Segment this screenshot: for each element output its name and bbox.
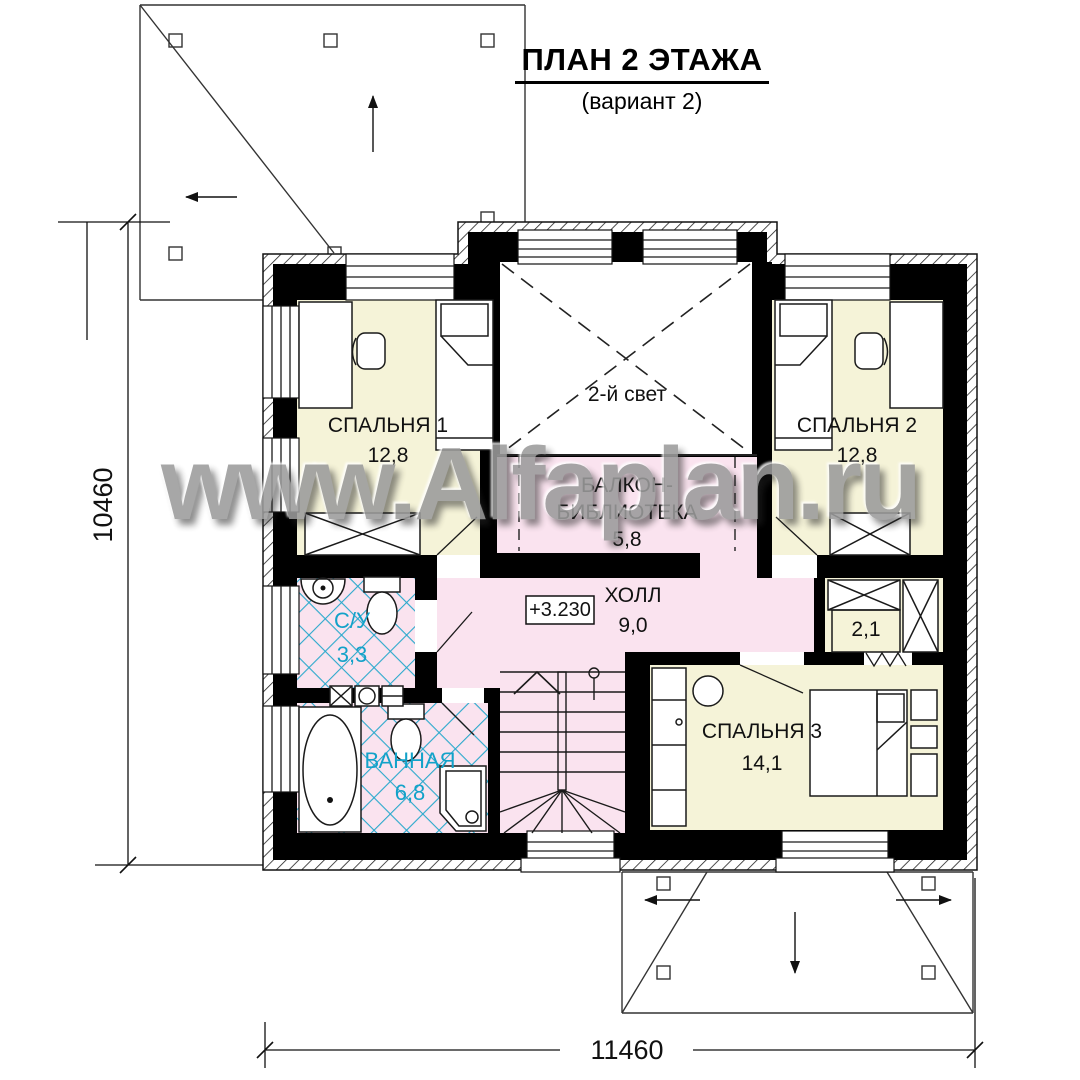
balcony-label-2: БИБЛИОТЕКА <box>557 501 698 524</box>
floor-plan-drawing: 10460 11460 <box>0 0 1080 1080</box>
roof-post <box>922 966 935 979</box>
double-bed <box>810 690 907 796</box>
bedroom3-area: 14,1 <box>742 752 783 775</box>
level-mark-value: +3.230 <box>529 599 591 621</box>
window-left-2 <box>263 438 299 512</box>
drawing-title-block: ПЛАН 2 ЭТАЖА (вариант 2) <box>492 42 792 115</box>
roof-post <box>169 247 182 260</box>
bedroom2-label: СПАЛЬНЯ 2 <box>797 414 917 437</box>
nightstand <box>911 726 937 748</box>
roof-post <box>922 877 935 890</box>
lower-roof-outline <box>622 872 973 1013</box>
window-left-1 <box>263 306 299 398</box>
wardrobe-tall <box>903 580 938 652</box>
wc-label: С/У <box>334 608 371 633</box>
wardrobe <box>828 580 900 610</box>
balcony-area: 5,8 <box>612 528 641 551</box>
round-table <box>693 676 723 706</box>
window-top-bedroom1 <box>346 254 454 300</box>
desk-chair <box>353 333 386 369</box>
hall-label: ХОЛЛ <box>605 584 662 607</box>
nightstand <box>911 690 937 720</box>
wc-area: 3,3 <box>337 642 368 667</box>
page-subtitle: (вариант 2) <box>492 88 792 115</box>
bathtub <box>299 707 361 832</box>
hall-area: 9,0 <box>618 614 647 637</box>
closet-area: 2,1 <box>851 618 880 641</box>
desk <box>299 302 352 408</box>
window-left-3 <box>263 586 299 674</box>
roof-post <box>324 34 337 47</box>
dimension-width-label: 11460 <box>590 1035 663 1065</box>
void-label: 2-й свет <box>588 383 667 406</box>
wardrobe <box>830 513 910 555</box>
window-bay-left <box>518 230 612 264</box>
bedroom1-area: 12,8 <box>368 444 409 467</box>
shower <box>440 766 486 831</box>
dresser <box>911 754 937 796</box>
hall-floor-ext <box>437 652 500 688</box>
wardrobe <box>305 513 420 555</box>
bedroom1-label: СПАЛЬНЯ 1 <box>328 414 448 437</box>
roof-post <box>657 877 670 890</box>
bedroom2-area: 12,8 <box>837 444 878 467</box>
floor-plan-page: ПЛАН 2 ЭТАЖА (вариант 2) <box>0 0 1080 1080</box>
desk-chair <box>855 333 888 369</box>
window-left-4 <box>263 706 299 792</box>
page-title: ПЛАН 2 ЭТАЖА <box>515 42 768 84</box>
bedroom3-label: СПАЛЬНЯ 3 <box>702 720 822 743</box>
bath-area: 6,8 <box>395 780 426 805</box>
wardrobe-shelves <box>652 668 686 826</box>
balcony-hall-opening <box>700 553 757 578</box>
window-bay-right <box>643 230 737 264</box>
window-bottom-bedroom3 <box>776 831 894 872</box>
washing-machine-row <box>330 686 403 706</box>
window-top-bedroom2 <box>785 254 890 300</box>
roof-post <box>657 966 670 979</box>
bath-label: ВАННАЯ <box>365 748 456 773</box>
dimension-height-label: 10460 <box>88 467 118 542</box>
desk <box>890 302 943 408</box>
balcony-label-1: БАЛКОН- <box>581 474 673 497</box>
window-bottom-stairs <box>521 831 620 872</box>
closet-folding-door <box>864 652 912 666</box>
